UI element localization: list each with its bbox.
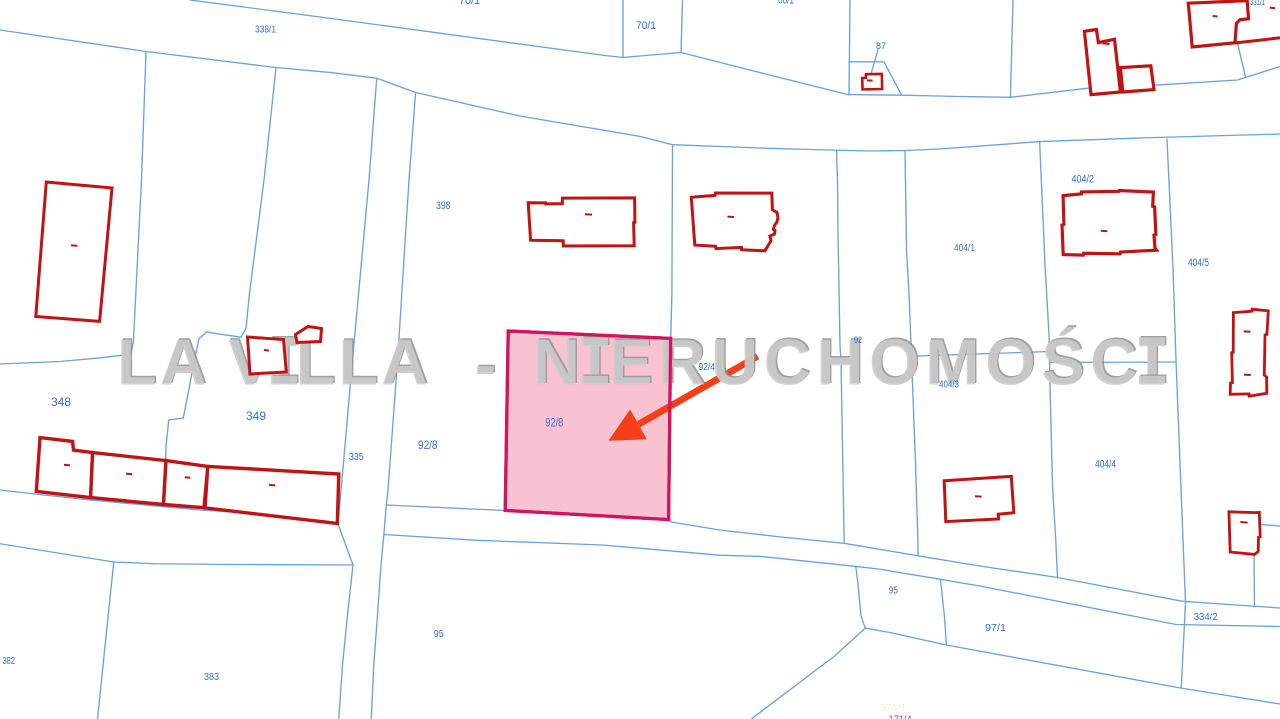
svg-text:70/1: 70/1 xyxy=(459,0,480,7)
svg-text:334/2: 334/2 xyxy=(1194,612,1218,623)
svg-text:92: 92 xyxy=(854,335,862,345)
svg-text:349: 349 xyxy=(246,409,266,423)
svg-text:404/1: 404/1 xyxy=(954,243,975,254)
svg-text:404/2: 404/2 xyxy=(1072,173,1095,185)
svg-text:95: 95 xyxy=(434,629,444,640)
svg-text:348: 348 xyxy=(51,395,71,409)
svg-text:171/4: 171/4 xyxy=(889,714,912,719)
svg-text:383: 383 xyxy=(204,672,219,683)
svg-text:70/1: 70/1 xyxy=(636,20,656,32)
svg-text:404/3: 404/3 xyxy=(939,380,959,391)
svg-text:-: - xyxy=(475,328,497,401)
svg-text:92/8: 92/8 xyxy=(545,416,563,430)
svg-text:60/1: 60/1 xyxy=(778,0,794,7)
svg-text:373/1: 373/1 xyxy=(880,703,906,713)
svg-text:335: 335 xyxy=(349,452,364,463)
svg-text:404/5: 404/5 xyxy=(1188,257,1209,269)
svg-text:338/1: 338/1 xyxy=(255,25,276,36)
svg-text:95: 95 xyxy=(889,586,898,597)
svg-text:87: 87 xyxy=(876,41,886,51)
svg-text:97/1: 97/1 xyxy=(985,623,1006,634)
svg-text:398: 398 xyxy=(436,200,451,212)
svg-text:404/4: 404/4 xyxy=(1095,459,1116,471)
svg-text:382: 382 xyxy=(3,656,16,667)
svg-text:92/4: 92/4 xyxy=(699,362,716,373)
svg-text:331/1: 331/1 xyxy=(1250,0,1265,7)
svg-text:92/8: 92/8 xyxy=(418,438,438,452)
